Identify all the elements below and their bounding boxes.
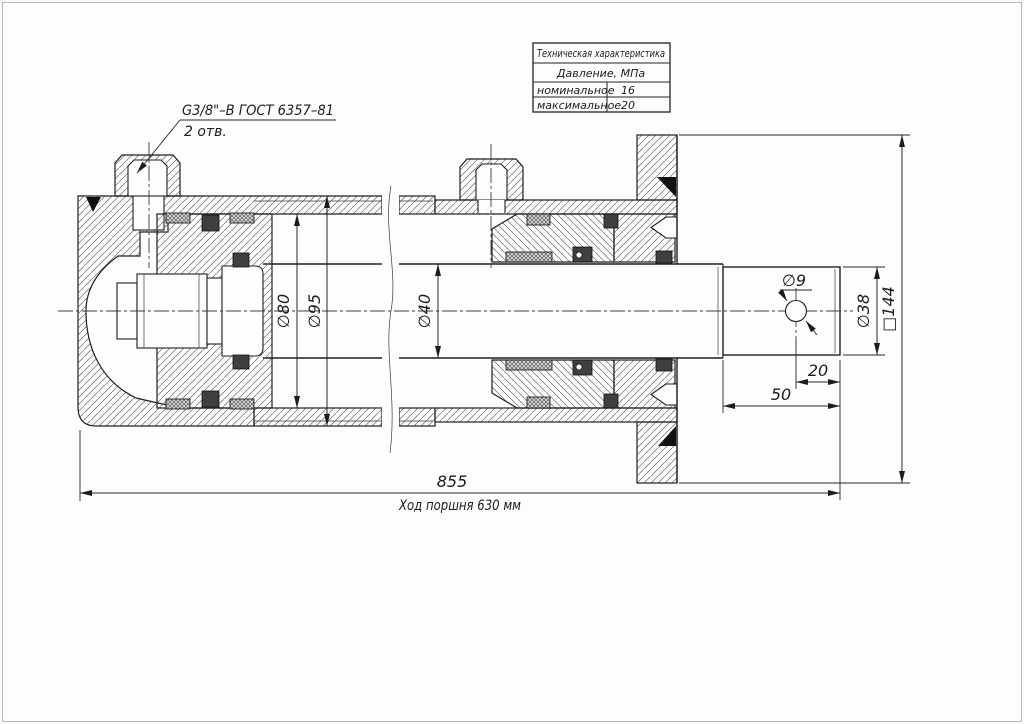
table-row-value: 20 xyxy=(621,99,635,112)
wiper-seal xyxy=(656,359,672,371)
hydraulic-cylinder-drawing: ∅80 ∅95 ∅40 ∅9 ∅38 □144 xyxy=(0,0,1024,724)
table-title: Техническая характеристика xyxy=(537,47,665,60)
dim-tip-dia-label: ∅38 xyxy=(854,294,873,328)
o-ring xyxy=(233,253,249,267)
dim-outer-label: ∅95 xyxy=(305,294,324,328)
gland-o-ring xyxy=(604,214,618,228)
rod-seal xyxy=(506,252,552,262)
piston-seal xyxy=(230,399,254,409)
piston-seal xyxy=(166,399,190,409)
gland-od-seal xyxy=(527,397,550,408)
dim-outer: ∅95 xyxy=(305,196,327,426)
piston-seal xyxy=(202,391,219,407)
rod-seal xyxy=(506,360,552,370)
table-row-param: максимальное xyxy=(537,99,621,112)
gland-o-ring xyxy=(604,394,618,408)
dim-hole-label: ∅9 xyxy=(782,271,806,290)
cross-hole xyxy=(786,301,807,322)
dim-overall: 855 Ход поршня 630 мм xyxy=(80,430,840,514)
dim-hole-offset: 20 xyxy=(796,340,840,500)
gland-od-seal xyxy=(527,214,550,225)
dim-overall-label: 855 xyxy=(437,472,468,491)
dim-tip-length-label: 50 xyxy=(771,385,791,404)
port-qty-label: 2 отв. xyxy=(184,124,227,140)
stroke-note: Ход поршня 630 мм xyxy=(398,498,521,514)
dim-hole-offset-label: 20 xyxy=(808,361,828,380)
piston-seal xyxy=(202,215,219,231)
o-ring xyxy=(233,355,249,369)
piston-seal xyxy=(166,213,190,223)
wiper-seal xyxy=(656,251,672,263)
cylinder-section xyxy=(58,135,853,483)
spec-table: Техническая характеристика Давление, МПа… xyxy=(533,43,670,112)
table-row-param: номинальное xyxy=(537,84,615,97)
break-line xyxy=(382,186,399,453)
table-row-value: 16 xyxy=(621,84,635,97)
dim-bore-label: ∅80 xyxy=(274,294,293,328)
dim-flange-square-label: □144 xyxy=(879,286,898,332)
dim-rod-label: ∅40 xyxy=(415,294,434,328)
table-subtitle: Давление, МПа xyxy=(556,67,645,80)
port-spec-label: G3/8"–В ГОСТ 6357–81 xyxy=(182,103,334,119)
piston-seal xyxy=(230,213,254,223)
engineering-drawing-page: ∅80 ∅95 ∅40 ∅9 ∅38 □144 xyxy=(0,0,1024,724)
